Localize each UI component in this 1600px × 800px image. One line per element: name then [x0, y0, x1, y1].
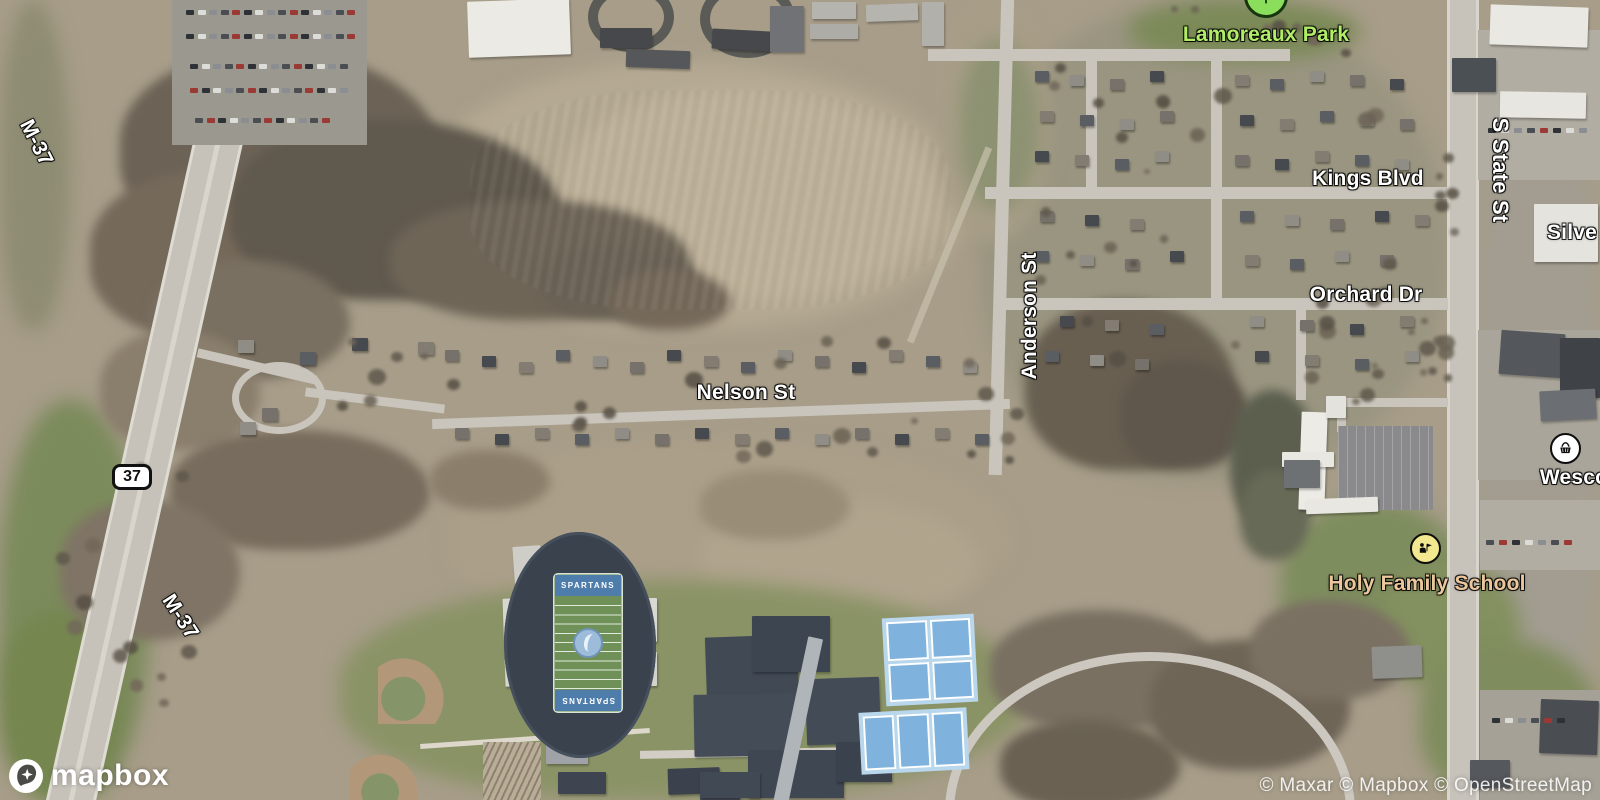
- parked-car: [186, 10, 194, 15]
- house: [667, 350, 681, 361]
- building: [558, 772, 606, 794]
- house: [575, 434, 589, 445]
- tree: [1437, 335, 1455, 351]
- parked-car: [1527, 128, 1535, 133]
- parked-car: [230, 118, 238, 123]
- tree: [1383, 258, 1397, 270]
- parked-car: [241, 118, 249, 123]
- tree: [1446, 188, 1459, 199]
- house: [704, 356, 718, 367]
- side-street-road: [1296, 304, 1306, 400]
- house: [1160, 111, 1174, 122]
- tree: [113, 649, 128, 663]
- endzone-south: SPARTANS: [555, 690, 621, 711]
- parked-car: [255, 34, 263, 39]
- parked-car: [1518, 718, 1526, 723]
- parked-car: [225, 64, 233, 69]
- parked-car: [1514, 128, 1522, 133]
- house: [1275, 159, 1289, 170]
- tree: [1010, 408, 1024, 420]
- tree: [1341, 49, 1350, 57]
- parking-lot: [172, 0, 367, 145]
- label-silver-partial: Silve: [1547, 221, 1597, 245]
- parked-car: [301, 34, 309, 39]
- parked-car: [1492, 718, 1500, 723]
- parked-car: [305, 64, 313, 69]
- house: [1235, 75, 1249, 86]
- endzone-text: SPARTANS: [561, 581, 615, 590]
- label-lamoreaux-park: Lamoreaux Park: [1183, 23, 1349, 47]
- house: [1330, 219, 1344, 230]
- grocery-basket-icon: [1550, 433, 1581, 464]
- terrain-patch: [700, 470, 850, 540]
- tree: [1191, 6, 1199, 13]
- tree: [337, 401, 348, 411]
- tree: [833, 428, 851, 444]
- parked-car: [207, 118, 215, 123]
- parked-car: [336, 10, 344, 15]
- building: [812, 2, 856, 19]
- tree: [1082, 316, 1093, 326]
- parked-car: [324, 10, 332, 15]
- tree: [756, 441, 773, 457]
- house: [695, 428, 709, 439]
- tree: [1436, 173, 1444, 180]
- house: [1400, 119, 1414, 130]
- north-street-road: [928, 49, 1290, 61]
- endzone-text: SPARTANS: [561, 696, 615, 705]
- tree: [964, 358, 975, 368]
- house: [1080, 255, 1094, 266]
- house: [1270, 79, 1284, 90]
- parked-car: [1557, 718, 1565, 723]
- parked-car: [267, 10, 275, 15]
- house: [1400, 316, 1414, 327]
- house: [775, 428, 789, 439]
- house: [593, 356, 607, 367]
- house: [1390, 79, 1404, 90]
- parked-car: [1486, 540, 1494, 545]
- parked-car: [244, 34, 252, 39]
- tree: [877, 337, 890, 349]
- house: [535, 428, 549, 439]
- parked-car: [278, 34, 286, 39]
- house: [1060, 316, 1074, 327]
- tree: [911, 418, 917, 424]
- house: [1415, 215, 1429, 226]
- parked-car: [328, 64, 336, 69]
- house: [935, 428, 949, 439]
- tree: [736, 450, 751, 463]
- house: [1280, 119, 1294, 130]
- parked-car: [202, 64, 210, 69]
- house: [615, 428, 629, 439]
- house: [1350, 324, 1364, 335]
- parked-car: [313, 34, 321, 39]
- parked-car: [313, 10, 321, 15]
- parked-car: [290, 34, 298, 39]
- school-icon: [1410, 533, 1441, 564]
- house: [1245, 255, 1259, 266]
- mapbox-logo-icon: [8, 758, 44, 794]
- map-attribution[interactable]: © Maxar © Mapbox © OpenStreetMap: [1259, 775, 1592, 797]
- parked-car: [1538, 540, 1546, 545]
- house: [238, 340, 254, 353]
- building: [1284, 460, 1320, 488]
- building: [693, 693, 798, 757]
- label-holy-family-school: Holy Family School: [1328, 572, 1525, 596]
- house: [1045, 351, 1059, 362]
- building: [467, 0, 571, 58]
- label-kings-blvd: Kings Blvd: [1312, 167, 1424, 191]
- parked-car: [236, 88, 244, 93]
- tree: [368, 369, 386, 385]
- building: [1371, 645, 1422, 679]
- tree: [447, 379, 460, 391]
- tree: [67, 620, 83, 635]
- house: [1105, 320, 1119, 331]
- building: [1452, 58, 1496, 92]
- satellite-map[interactable]: SPARTANS SPARTANS Lamoreaux Park Kings B…: [0, 0, 1600, 800]
- tree: [181, 645, 197, 659]
- building: [922, 2, 944, 46]
- building: [1489, 4, 1588, 47]
- house: [741, 362, 755, 373]
- s-state-st-road: [1447, 0, 1479, 800]
- tree: [1358, 112, 1376, 128]
- house: [1350, 75, 1364, 86]
- house: [1035, 71, 1049, 82]
- parked-car: [301, 10, 309, 15]
- tree: [1420, 369, 1428, 376]
- house: [455, 428, 469, 439]
- parked-car: [221, 10, 229, 15]
- parked-car: [294, 88, 302, 93]
- parked-car: [1579, 128, 1587, 133]
- building: [1500, 91, 1586, 118]
- parked-car: [198, 10, 206, 15]
- label-anderson-st: Anderson St: [1018, 252, 1042, 379]
- house: [1355, 155, 1369, 166]
- tree: [1372, 369, 1383, 379]
- parked-car: [195, 118, 203, 123]
- building: [700, 772, 760, 798]
- house: [1315, 151, 1329, 162]
- house: [1170, 251, 1184, 262]
- label-orchard-dr: Orchard Dr: [1310, 283, 1423, 307]
- building: [600, 28, 652, 48]
- parked-car: [190, 64, 198, 69]
- parked-car: [294, 64, 302, 69]
- house: [1310, 71, 1324, 82]
- tree: [159, 699, 168, 707]
- parked-car: [305, 88, 313, 93]
- parked-car: [202, 88, 210, 93]
- house: [1255, 351, 1269, 362]
- parked-car: [244, 10, 252, 15]
- route-37-shield: 37: [112, 464, 152, 490]
- house: [889, 350, 903, 361]
- tree: [1116, 132, 1128, 143]
- house: [630, 362, 644, 373]
- house: [1075, 155, 1089, 166]
- house: [300, 352, 316, 365]
- parked-car: [221, 34, 229, 39]
- parked-car: [198, 34, 206, 39]
- parked-car: [232, 34, 240, 39]
- building: [770, 6, 804, 52]
- tree: [1435, 200, 1449, 212]
- building: [1306, 497, 1378, 515]
- house: [1235, 155, 1249, 166]
- house: [815, 356, 829, 367]
- parked-car: [347, 34, 355, 39]
- building: [1326, 396, 1346, 418]
- house: [1150, 324, 1164, 335]
- house: [519, 362, 533, 373]
- building: [626, 49, 691, 69]
- parked-car: [259, 64, 267, 69]
- parked-car: [1564, 540, 1572, 545]
- house: [1130, 219, 1144, 230]
- tree: [1160, 235, 1168, 243]
- house: [1070, 75, 1084, 86]
- tree: [967, 450, 976, 458]
- parked-car: [1540, 128, 1548, 133]
- parked-car: [1499, 540, 1507, 545]
- tree: [1041, 207, 1052, 216]
- house: [1250, 316, 1264, 327]
- building: [1499, 330, 1566, 378]
- parked-car: [209, 34, 217, 39]
- parked-car: [267, 34, 275, 39]
- mapbox-wordmark: mapbox: [51, 759, 169, 793]
- tree: [157, 673, 166, 681]
- tree: [572, 420, 585, 432]
- parked-car: [276, 118, 284, 123]
- parked-car: [1566, 128, 1574, 133]
- parked-car: [290, 10, 298, 15]
- parked-car: [282, 88, 290, 93]
- house: [855, 428, 869, 439]
- house: [735, 434, 749, 445]
- tree: [1001, 432, 1016, 445]
- tree: [1421, 318, 1427, 324]
- tennis-courts-north: [882, 614, 978, 707]
- house: [556, 350, 570, 361]
- parked-car: [340, 64, 348, 69]
- tree: [1428, 367, 1437, 375]
- tree: [391, 352, 403, 363]
- tree: [1305, 371, 1319, 384]
- parked-car: [299, 118, 307, 123]
- parked-car: [259, 88, 267, 93]
- parked-car: [347, 10, 355, 15]
- parked-car: [328, 88, 336, 93]
- tree: [1319, 316, 1335, 330]
- dirt-streaks: [470, 90, 950, 310]
- parked-car: [336, 34, 344, 39]
- house: [1135, 359, 1149, 370]
- house: [1150, 71, 1164, 82]
- tree: [130, 679, 143, 691]
- tree: [821, 336, 834, 347]
- building: [810, 24, 858, 39]
- house: [1355, 359, 1369, 370]
- tree: [176, 471, 189, 483]
- parked-car: [282, 64, 290, 69]
- house: [1240, 211, 1254, 222]
- house: [1285, 215, 1299, 226]
- label-wesco: Wesco: [1540, 466, 1600, 490]
- parked-car: [218, 118, 226, 123]
- building: [1539, 389, 1596, 422]
- house: [655, 434, 669, 445]
- tree: [1372, 363, 1379, 369]
- tennis-courts-south: [858, 707, 969, 775]
- building: [866, 3, 919, 22]
- house: [815, 434, 829, 445]
- house: [1090, 355, 1104, 366]
- parked-car: [1551, 540, 1559, 545]
- tree: [1093, 98, 1104, 108]
- house: [1035, 151, 1049, 162]
- parked-car: [255, 10, 263, 15]
- tree: [774, 358, 787, 369]
- house: [1155, 151, 1169, 162]
- tree: [1171, 6, 1178, 12]
- house: [1300, 320, 1314, 331]
- parked-car: [324, 34, 332, 39]
- house: [262, 408, 278, 421]
- tree: [364, 395, 377, 407]
- parked-car: [186, 34, 194, 39]
- parked-car: [287, 118, 295, 123]
- parked-car: [248, 64, 256, 69]
- parked-car: [232, 10, 240, 15]
- parked-car: [213, 64, 221, 69]
- parked-car: [1544, 718, 1552, 723]
- parked-car: [1505, 718, 1513, 723]
- tree: [85, 538, 101, 552]
- mapbox-logo[interactable]: mapbox: [8, 758, 169, 794]
- spartan-helmet-logo: [573, 628, 603, 658]
- parked-car: [1531, 718, 1539, 723]
- house: [482, 356, 496, 367]
- tree: [76, 595, 93, 610]
- label-nelson-st: Nelson St: [697, 381, 796, 405]
- house: [1110, 79, 1124, 90]
- house: [1085, 215, 1099, 226]
- parked-car: [225, 88, 233, 93]
- parked-car: [236, 64, 244, 69]
- house: [1120, 119, 1134, 130]
- parked-car: [340, 88, 348, 93]
- parked-car: [310, 118, 318, 123]
- baseball-diamond: [350, 748, 436, 800]
- terrain-patch: [430, 450, 550, 510]
- parked-car: [322, 118, 330, 123]
- parked-car: [317, 64, 325, 69]
- house: [1080, 115, 1094, 126]
- parked-car: [248, 88, 256, 93]
- bleacher-rows: [483, 742, 541, 800]
- parked-car: [278, 10, 286, 15]
- house: [445, 350, 459, 361]
- house: [1405, 351, 1419, 362]
- house: [895, 434, 909, 445]
- house: [1115, 159, 1129, 170]
- parked-car: [1525, 540, 1533, 545]
- parked-car: [190, 88, 198, 93]
- label-s-state-st: S State St: [1487, 118, 1513, 223]
- parked-car: [1553, 128, 1561, 133]
- parked-car: [271, 88, 279, 93]
- parked-car: [213, 88, 221, 93]
- parked-car: [271, 64, 279, 69]
- house: [1040, 111, 1054, 122]
- parking-lot: [1480, 500, 1600, 570]
- house: [975, 434, 989, 445]
- tree: [421, 353, 428, 360]
- house: [240, 422, 256, 435]
- endzone-north: SPARTANS: [555, 575, 621, 596]
- baseball-diamond: [378, 640, 462, 724]
- house: [1290, 259, 1304, 270]
- tree: [603, 407, 616, 419]
- tree: [1435, 191, 1446, 200]
- parked-car: [209, 10, 217, 15]
- parked-car: [1512, 540, 1520, 545]
- football-field: SPARTANS SPARTANS: [553, 573, 623, 713]
- house: [1375, 211, 1389, 222]
- house: [1335, 251, 1349, 262]
- house: [926, 356, 940, 367]
- tree: [1104, 242, 1117, 253]
- house: [1320, 111, 1334, 122]
- tree: [1005, 456, 1014, 464]
- route-37-number: 37: [123, 468, 141, 486]
- tree: [978, 387, 993, 401]
- parked-car: [264, 118, 272, 123]
- house: [1305, 355, 1319, 366]
- parked-car: [253, 118, 261, 123]
- parked-car: [317, 88, 325, 93]
- house: [495, 434, 509, 445]
- building: [712, 28, 771, 51]
- tree: [575, 401, 587, 412]
- house: [852, 362, 866, 373]
- house: [1240, 115, 1254, 126]
- building: [1539, 699, 1599, 755]
